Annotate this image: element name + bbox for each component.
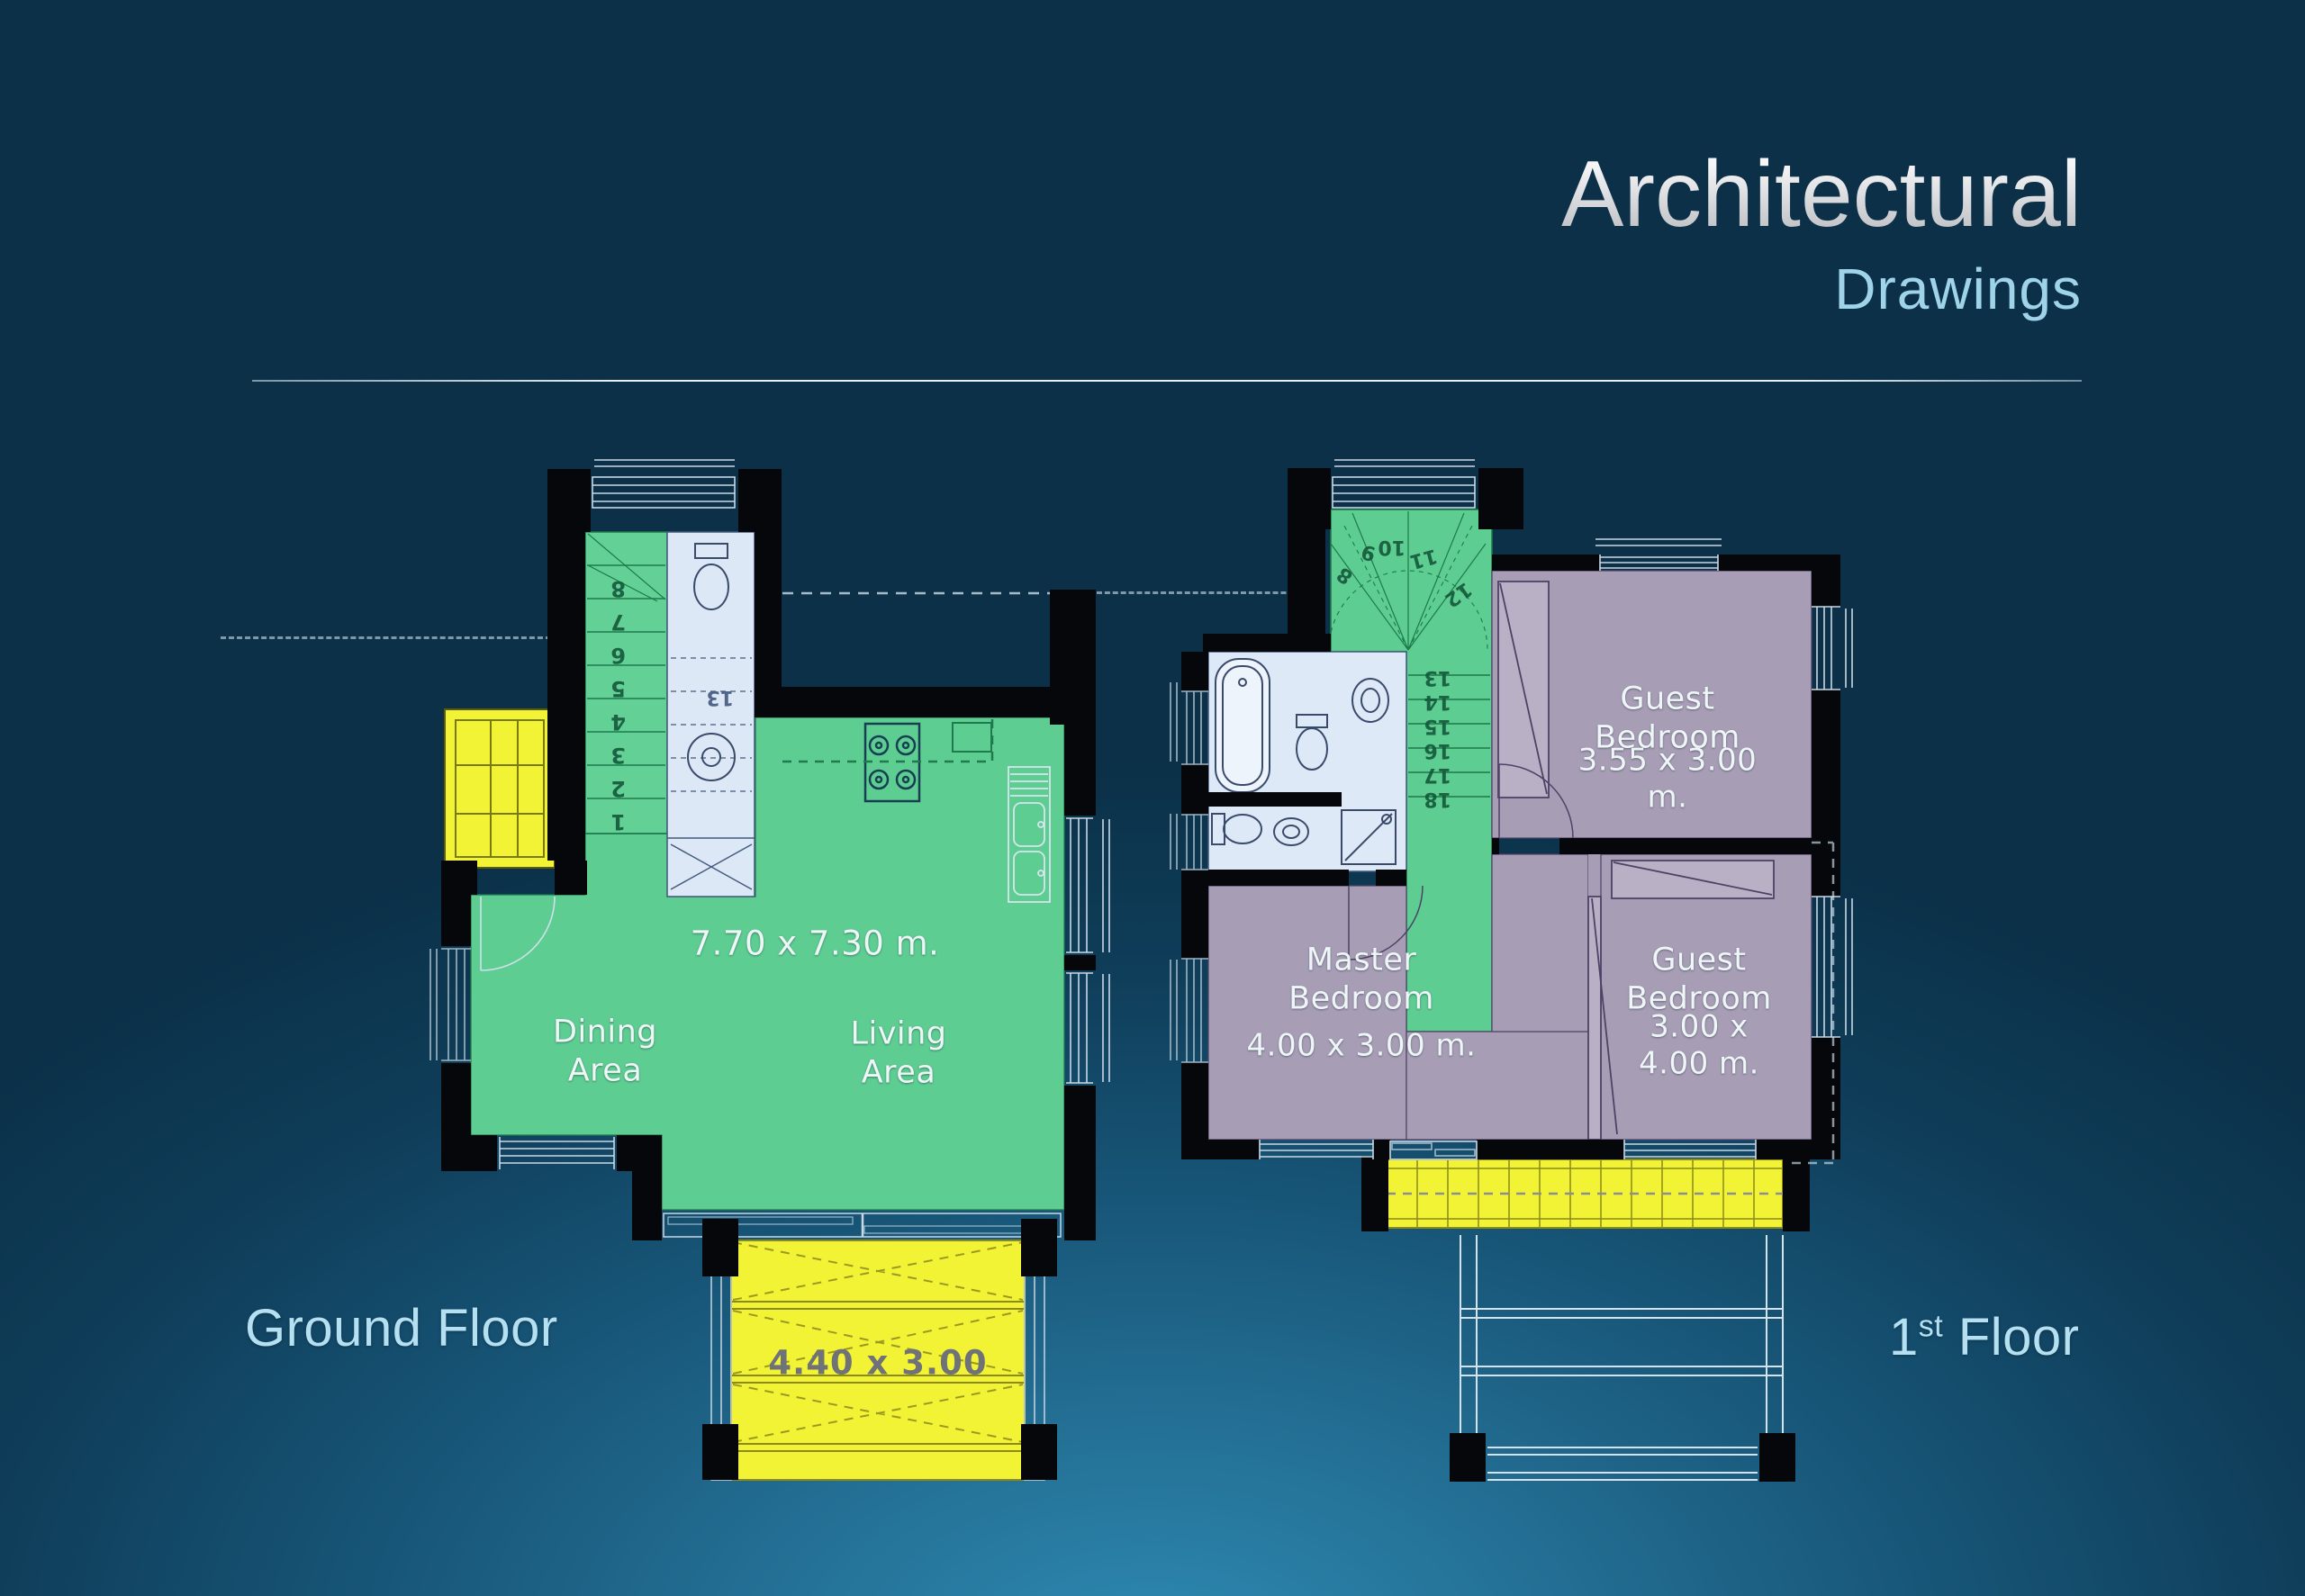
stair-number: 8 (610, 576, 626, 601)
title-divider (252, 380, 2082, 382)
stair-number: 15 (1424, 715, 1451, 737)
stair-number: 13 (1424, 666, 1451, 689)
bathtub-icon (1216, 659, 1270, 792)
balcony (1387, 1159, 1783, 1228)
page-subtitle: Drawings (1561, 257, 2082, 320)
first-floor-plan: 8 9 10 11 12 13 14 15 16 17 18 Guest Bed… (1163, 455, 1866, 1491)
master-bedroom-label: Master Bedroom (1288, 941, 1434, 1017)
window-right-1 (1066, 818, 1109, 952)
stair-number: 2 (610, 776, 626, 801)
wardrobe-guest2 (1612, 861, 1774, 898)
stair-number: 16 (1424, 739, 1451, 762)
stair-number: 10 (1378, 536, 1406, 558)
stair-number: 7 (610, 609, 626, 635)
window-bottom-1 (1260, 1140, 1373, 1159)
bathroom: 13 (667, 532, 755, 897)
master-bedroom-dim: 4.00 x 3.00 m. (1247, 1027, 1477, 1064)
pergola (1460, 1235, 1783, 1480)
page-title: Architectural (1561, 144, 2082, 245)
window-right-2 (1812, 897, 1852, 1037)
window-left (430, 949, 471, 1060)
room-dimension-label: 7.70 x 7.30 m. (691, 923, 940, 963)
window-top-strip (1333, 460, 1475, 508)
slide: Architectural Drawings (0, 0, 2305, 1596)
window-top-strip (592, 460, 735, 508)
window-right-2 (1066, 973, 1109, 1083)
living-area-label: Living Area (850, 1014, 946, 1091)
guest-bedroom-2-label: Guest Bedroom (1626, 941, 1772, 1017)
title-block: Architectural Drawings (1561, 144, 2082, 321)
stair-number: 17 (1424, 763, 1451, 786)
hall-floor (1492, 854, 1588, 1032)
guest-bedroom-1-dim: 3.55 x 3.00 m. (1568, 743, 1767, 817)
stair-number: 13 (706, 686, 734, 708)
balcony-door (1390, 1141, 1477, 1159)
dining-area-label: Dining Area (553, 1013, 657, 1089)
window-guest1-top (1595, 539, 1722, 571)
stair-number: 5 (610, 676, 626, 701)
planter-box (445, 709, 555, 868)
window-left-2 (1171, 814, 1208, 870)
window-right-1 (1812, 607, 1852, 690)
stair-number: 14 (1424, 690, 1451, 713)
first-floor-label-rest: Floor (1958, 1308, 2080, 1366)
first-floor-label: 1st Floor (1889, 1307, 2080, 1367)
window-bottom-left (500, 1137, 614, 1169)
stair-number: 4 (610, 709, 626, 735)
window-left-1 (1171, 682, 1208, 764)
guest-bedroom-2-dim: 3.00 x 4.00 m. (1616, 1009, 1783, 1084)
stair-number: 6 (610, 643, 626, 668)
deck-dimension-label: 4.40 x 3.00 (768, 1342, 987, 1383)
stair-number: 1 (610, 809, 626, 834)
stair-number: 3 (610, 743, 626, 768)
window-left-3 (1171, 959, 1208, 1062)
hall-opening (1588, 854, 1601, 897)
window-bottom-2 (1624, 1140, 1756, 1159)
first-floor-label-sup: st (1919, 1310, 1943, 1344)
first-floor-label-num: 1 (1889, 1308, 1919, 1366)
stair-number: 18 (1424, 788, 1451, 810)
bathroom (1208, 652, 1406, 871)
ground-floor-label: Ground Floor (245, 1298, 558, 1358)
